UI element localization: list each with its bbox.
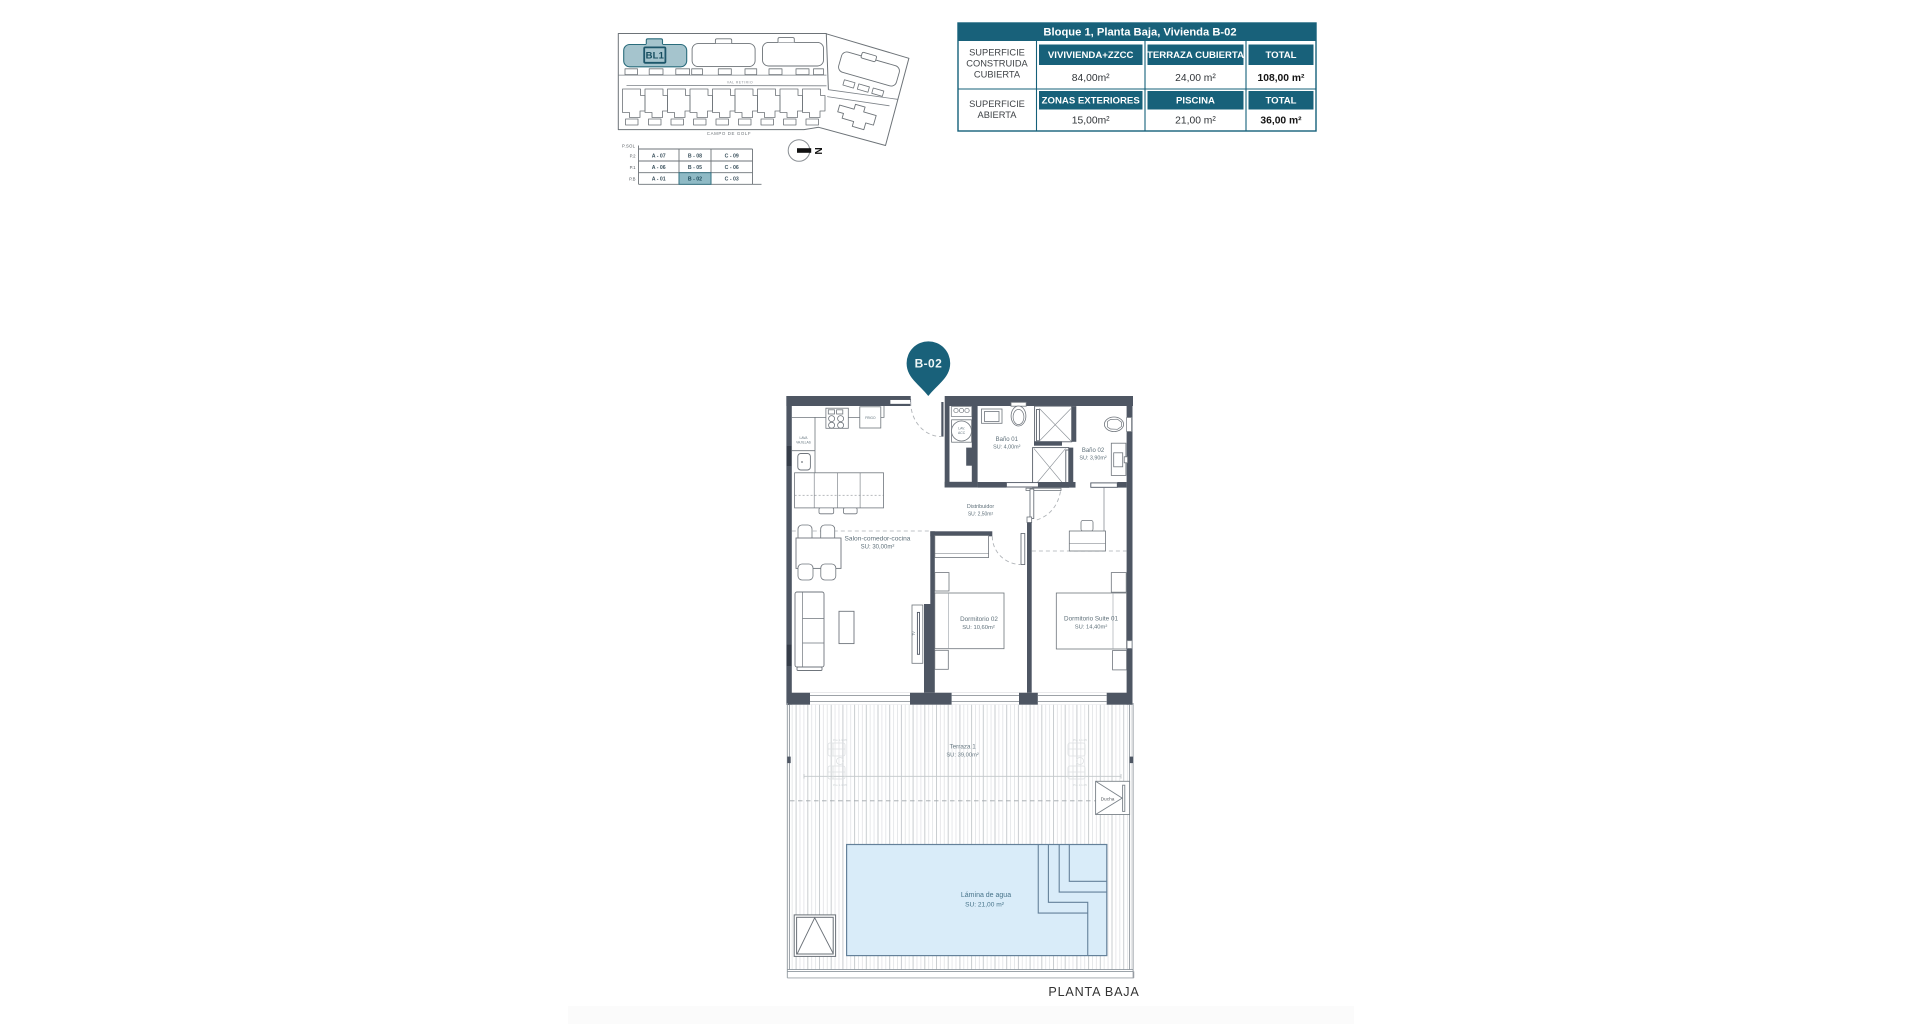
svg-text:Pre 1.1.05: Pre 1.1.05 — [1073, 783, 1087, 787]
svg-text:VIVIVIENDA+ZZCC: VIVIVIENDA+ZZCC — [1048, 50, 1134, 61]
svg-text:ACC: ACC — [958, 431, 966, 435]
svg-text:Pre 1.1.05: Pre 1.1.05 — [833, 738, 847, 742]
svg-text:SU: 10,60m²: SU: 10,60m² — [962, 625, 995, 631]
svg-text:Baño 01: Baño 01 — [996, 437, 1019, 443]
svg-text:Salon-comedor-cocina: Salon-comedor-cocina — [845, 536, 911, 543]
svg-text:TV: TV — [912, 631, 916, 636]
svg-text:Dormitorio Suite 01: Dormitorio Suite 01 — [1064, 616, 1118, 623]
svg-text:SU: 2,50m²: SU: 2,50m² — [968, 511, 994, 517]
svg-text:A - 07: A - 07 — [652, 153, 666, 159]
svg-text:Pre 1.1.05: Pre 1.1.05 — [1073, 738, 1087, 742]
svg-text:21,00 m²: 21,00 m² — [1175, 116, 1216, 127]
svg-text:B - 08: B - 08 — [688, 153, 702, 159]
svg-text:LAV.: LAV. — [958, 427, 965, 431]
svg-text:Bloque 1, Planta Baja, Viviend: Bloque 1, Planta Baja, Vivienda B-02 — [1043, 27, 1236, 39]
svg-text:SU: 14,40m²: SU: 14,40m² — [1075, 625, 1108, 631]
svg-text:P.1: P.1 — [630, 165, 637, 170]
svg-text:TOTAL: TOTAL — [1265, 50, 1296, 61]
svg-text:PLANTA BAJA: PLANTA BAJA — [1048, 985, 1139, 999]
svg-text:SU: 21,00 m²: SU: 21,00 m² — [965, 902, 1005, 909]
svg-text:ABIERTA: ABIERTA — [978, 110, 1018, 120]
svg-text:CONSTRUIDA: CONSTRUIDA — [966, 59, 1028, 69]
svg-text:Lámina de agua: Lámina de agua — [961, 892, 1011, 899]
svg-text:SUPERFICIE: SUPERFICIE — [969, 48, 1025, 58]
svg-text:LAVA: LAVA — [800, 436, 809, 440]
svg-text:B-02: B-02 — [915, 356, 943, 370]
svg-text:C - 06: C - 06 — [725, 165, 739, 171]
svg-text:Ducha: Ducha — [1101, 796, 1115, 802]
svg-text:A - 06: A - 06 — [652, 165, 666, 171]
svg-text:A - 01: A - 01 — [652, 177, 666, 183]
svg-text:FRIGO: FRIGO — [865, 416, 876, 420]
svg-text:CAMPO DE GOLF: CAMPO DE GOLF — [707, 131, 751, 136]
svg-text:P.B: P.B — [629, 177, 636, 182]
svg-text:B - 02: B - 02 — [688, 177, 702, 183]
svg-text:TERRAZA CUBIERTA: TERRAZA CUBIERTA — [1147, 50, 1244, 61]
svg-text:C - 03: C - 03 — [725, 177, 739, 183]
svg-text:SU: 4,00m²: SU: 4,00m² — [993, 444, 1020, 450]
svg-text:VAL RETIRIO: VAL RETIRIO — [727, 80, 753, 84]
svg-text:BL1: BL1 — [646, 51, 665, 62]
svg-text:TOTAL: TOTAL — [1265, 96, 1296, 107]
svg-text:SUPERFICIE: SUPERFICIE — [969, 99, 1025, 109]
svg-text:SU: 39,00m²: SU: 39,00m² — [946, 752, 979, 758]
svg-text:PISCINA: PISCINA — [1176, 96, 1215, 107]
svg-text:B - 05: B - 05 — [688, 165, 702, 171]
svg-text:VAJILLAS: VAJILLAS — [796, 440, 812, 444]
svg-text:Pre 1.1.05: Pre 1.1.05 — [833, 783, 847, 787]
svg-text:108,00 m²: 108,00 m² — [1258, 73, 1306, 84]
svg-text:15,00m²: 15,00m² — [1072, 116, 1110, 127]
svg-text:Baño 02: Baño 02 — [1082, 448, 1105, 454]
svg-text:N: N — [812, 147, 823, 154]
svg-text:CUBIERTA: CUBIERTA — [974, 70, 1021, 80]
svg-text:84,00m²: 84,00m² — [1072, 73, 1110, 84]
svg-text:ZONAS EXTERIORES: ZONAS EXTERIORES — [1042, 96, 1141, 107]
svg-text:36,00 m²: 36,00 m² — [1260, 116, 1302, 127]
svg-text:P.2: P.2 — [630, 153, 637, 158]
svg-text:Terraza 1: Terraza 1 — [949, 744, 976, 751]
svg-text:P.SOL: P.SOL — [622, 144, 636, 149]
svg-text:SU: 3,90m²: SU: 3,90m² — [1079, 455, 1106, 461]
svg-text:Distribuidor: Distribuidor — [967, 504, 994, 510]
svg-text:SU: 30,00m²: SU: 30,00m² — [861, 545, 895, 551]
svg-text:C - 09: C - 09 — [725, 153, 739, 159]
svg-text:Dormitorio 02: Dormitorio 02 — [960, 616, 998, 623]
svg-text:24,00 m²: 24,00 m² — [1175, 73, 1216, 84]
